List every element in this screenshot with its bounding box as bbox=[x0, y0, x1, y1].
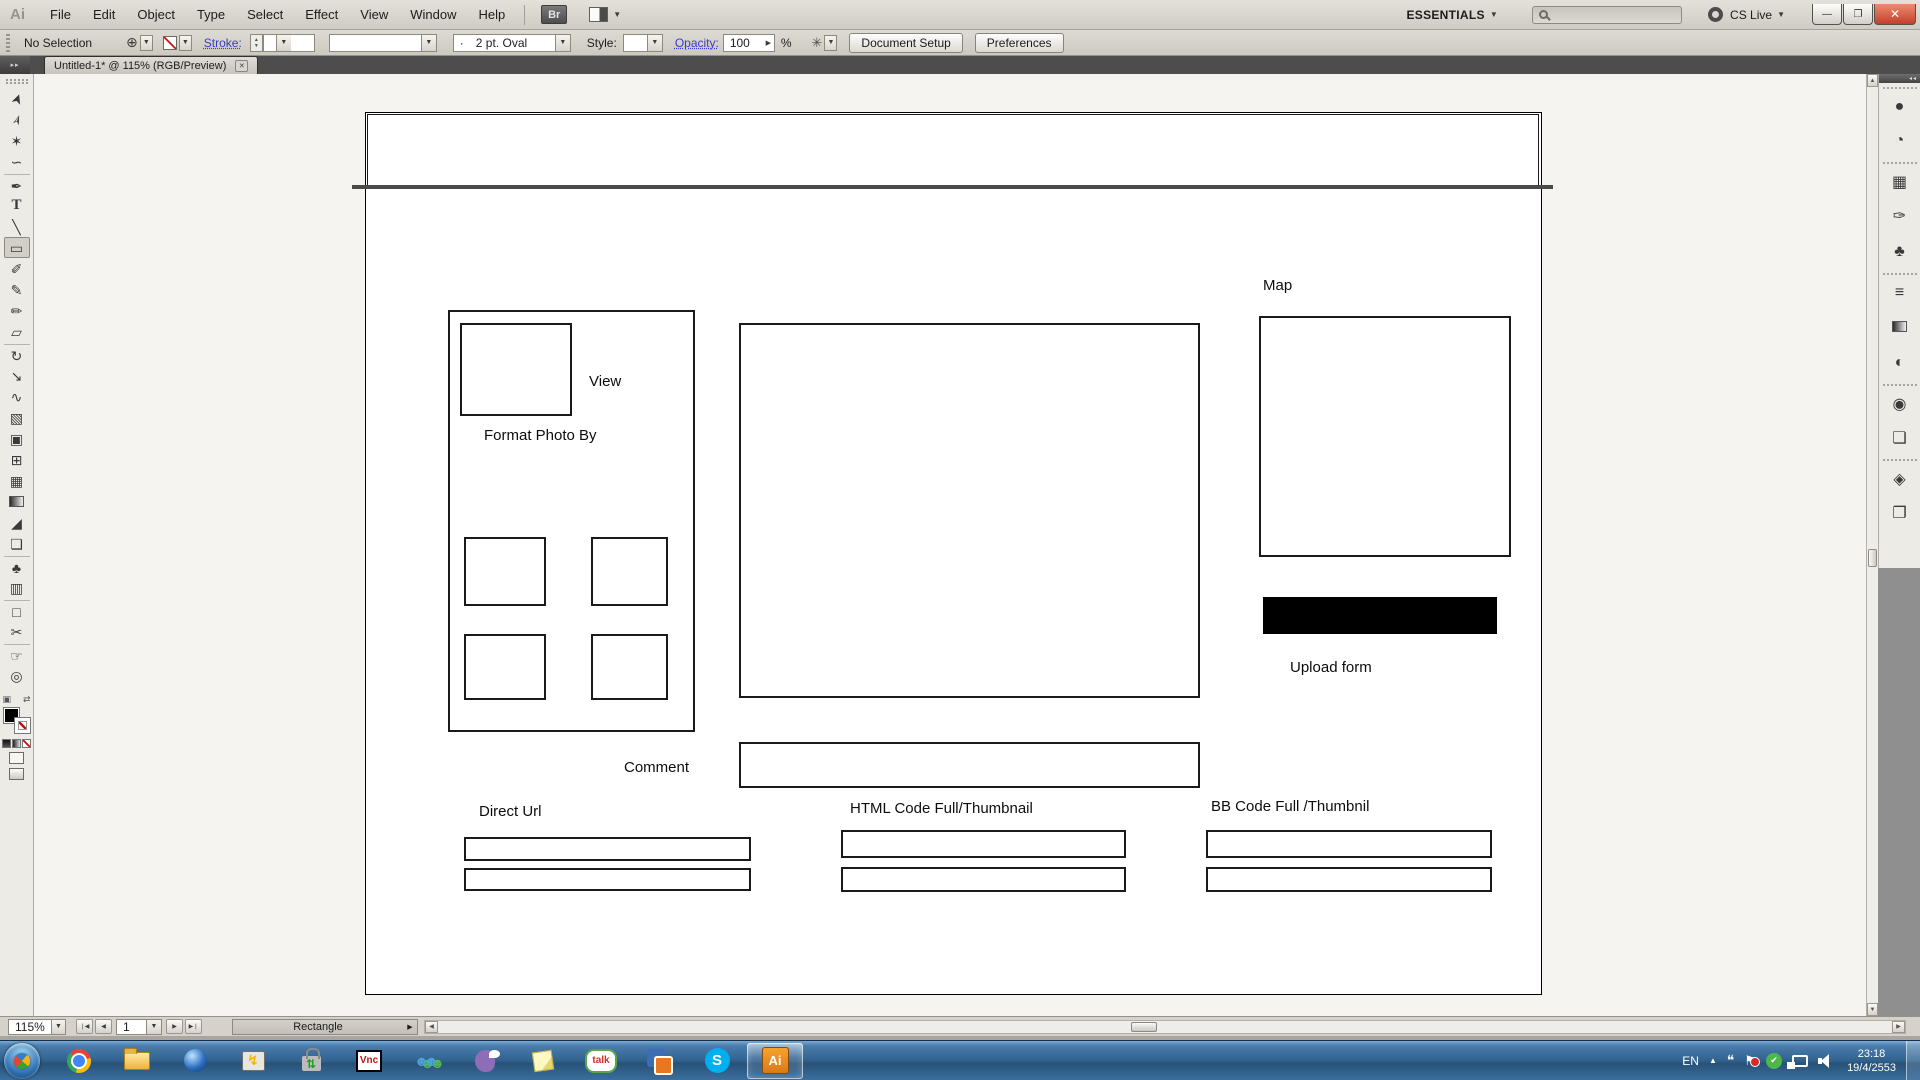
tool-glyph-icon: ✶ bbox=[11, 134, 23, 148]
upload-form-label[interactable]: Upload form bbox=[1290, 659, 1372, 676]
taskbar-vnc[interactable]: Vnc bbox=[341, 1043, 397, 1079]
dock-panel-list: ●◔▦✑♣≡◐◉❏◈❐ bbox=[1879, 87, 1920, 530]
tool-glyph-icon: ╲ bbox=[12, 220, 20, 234]
app-icon: talk bbox=[587, 1051, 615, 1071]
tray-action-center-icon[interactable]: ⚑ bbox=[1744, 1053, 1756, 1069]
vertical-scrollbar[interactable]: ▲ ▼ bbox=[1866, 74, 1878, 1016]
tool-glyph-icon: ◎ bbox=[10, 669, 22, 683]
panel-color-guide[interactable]: ◔ bbox=[1883, 123, 1917, 158]
panel-glyph-icon: ❏ bbox=[1892, 428, 1906, 448]
chevron-down-icon: ▼ bbox=[1777, 10, 1785, 19]
taskbar-explorer[interactable] bbox=[109, 1043, 165, 1079]
panel-glyph-icon: ◔ bbox=[1895, 132, 1905, 150]
chevron-down-icon: ▼ bbox=[146, 1020, 161, 1034]
stroke-none-swatch-icon[interactable] bbox=[163, 36, 177, 50]
direct-url-input-box[interactable] bbox=[464, 837, 751, 861]
panel-swatches[interactable]: ▦ bbox=[1883, 162, 1917, 197]
photo-grid-box[interactable] bbox=[464, 537, 546, 606]
opacity-expand-icon[interactable]: ▶ bbox=[763, 39, 774, 47]
direct-selection-tool[interactable]: ➢ bbox=[4, 109, 30, 130]
graphic-style-combo[interactable]: ▼ bbox=[623, 34, 663, 52]
shape-builder-tool[interactable]: ▣ bbox=[4, 428, 30, 449]
perspective-grid-tool[interactable]: ⊞ bbox=[4, 449, 30, 470]
expand-panels-icon[interactable]: ◂◂ bbox=[1879, 74, 1920, 83]
app-logo-icon: Ai bbox=[10, 6, 25, 23]
taskbar-vmware[interactable] bbox=[631, 1043, 687, 1079]
stroke-swatch[interactable] bbox=[14, 717, 31, 734]
app-icon: S bbox=[705, 1048, 730, 1073]
tray-glyph-icon: EN bbox=[1682, 1054, 1699, 1068]
panel-transparency[interactable]: ◐ bbox=[1883, 345, 1917, 380]
menu-divider bbox=[524, 5, 525, 25]
percent-label: % bbox=[781, 36, 792, 50]
tool-glyph-icon: ☞ bbox=[10, 649, 23, 663]
tool-glyph-icon: ↻ bbox=[11, 349, 23, 363]
status-display-combo[interactable]: Rectangle ▶ bbox=[232, 1019, 418, 1035]
taskbar-pidgin[interactable] bbox=[457, 1043, 513, 1079]
panel-appearance[interactable]: ◉ bbox=[1883, 384, 1917, 419]
default-fill-stroke-icon[interactable]: ▣ bbox=[3, 694, 12, 705]
app-icon bbox=[647, 1049, 665, 1067]
tray-show-hidden-icons[interactable]: ▲ bbox=[1709, 1056, 1717, 1065]
photo-thumbnail-box[interactable] bbox=[460, 323, 572, 416]
stroke-weight-stepper[interactable]: ▲▼ bbox=[250, 34, 263, 52]
tools-panel: ➤➢✶∽✒T╲▭✐✎✏▱↻↘∿▧▣⊞▦◢❏♣▥□✂☞◎ ▣ ⇄ bbox=[0, 74, 34, 1016]
stroke-panel-link[interactable]: Stroke: bbox=[204, 36, 242, 50]
type-tool[interactable]: T bbox=[4, 195, 30, 216]
tray-network-icon[interactable] bbox=[1792, 1055, 1808, 1067]
opacity-panel-link[interactable]: Opacity: bbox=[675, 36, 719, 50]
tool-glyph-icon: ✎ bbox=[11, 283, 23, 297]
window-controls: — ❐ ✕ bbox=[1811, 4, 1916, 25]
tool-glyph-icon bbox=[9, 496, 24, 507]
menu-bar-right: ESSENTIALS ▼ CS Live ▼ — ❐ ✕ bbox=[1406, 4, 1920, 25]
swap-fill-stroke-icon[interactable]: ⇄ bbox=[23, 694, 31, 705]
paintbrush-tool[interactable]: ✐ bbox=[4, 258, 30, 279]
tool-glyph-icon: ∽ bbox=[11, 155, 23, 169]
minimize-button[interactable]: — bbox=[1812, 4, 1842, 25]
cs-live-menu[interactable]: CS Live ▼ bbox=[1708, 7, 1785, 22]
panel-graphic-styles[interactable]: ❏ bbox=[1883, 420, 1917, 455]
help-search-field[interactable] bbox=[1532, 6, 1682, 24]
blob-brush-tool[interactable]: ✏ bbox=[4, 300, 30, 321]
comment-label[interactable]: Comment bbox=[624, 759, 689, 776]
direct-url-input-box[interactable] bbox=[464, 868, 751, 891]
taskbar-chrome[interactable] bbox=[51, 1043, 107, 1079]
tool-glyph-icon: ↘ bbox=[11, 369, 23, 383]
lasso-tool[interactable]: ∽ bbox=[4, 151, 30, 172]
blend-tool[interactable]: ❏ bbox=[4, 533, 30, 554]
fill-color-caret-icon[interactable]: ▼ bbox=[140, 35, 153, 51]
panel-dock: ◂◂ ●◔▦✑♣≡◐◉❏◈❐ bbox=[1878, 74, 1920, 1016]
tray-icon-list: EN▲❝⚑✔ bbox=[1677, 1052, 1839, 1069]
menu-item[interactable]: Edit bbox=[82, 0, 126, 30]
tray-language-indicator[interactable]: EN bbox=[1682, 1054, 1699, 1068]
status-expand-icon: ▶ bbox=[403, 1020, 417, 1034]
brush-preview-icon: · bbox=[454, 36, 470, 50]
taskbar-clock[interactable]: 23:18 19/4/2553 bbox=[1847, 1047, 1896, 1075]
expand-tools-panel-icon[interactable]: ▸▸ bbox=[0, 56, 30, 74]
tool-glyph-icon: ▣ bbox=[10, 432, 23, 446]
line-segment-tool[interactable]: ╲ bbox=[4, 216, 30, 237]
zoom-level-combo[interactable]: 115% ▼ bbox=[8, 1019, 66, 1035]
document-tab-title: Untitled-1* @ 115% (RGB/Preview) bbox=[54, 60, 226, 72]
taskbar-google-talk[interactable]: talk bbox=[573, 1043, 629, 1079]
app-icon: ☻☻ bbox=[414, 1053, 439, 1069]
panel-stroke[interactable]: ≡ bbox=[1883, 273, 1917, 308]
menu-item[interactable]: View bbox=[349, 0, 399, 30]
taskbar-illustrator[interactable]: Ai bbox=[747, 1043, 803, 1079]
selection-tool[interactable]: ➤ bbox=[4, 88, 30, 109]
direct-url-label[interactable]: Direct Url bbox=[479, 803, 542, 820]
taskbar-sticky-notes[interactable] bbox=[515, 1043, 571, 1079]
tool-glyph-icon: ✐ bbox=[11, 262, 23, 276]
horizontal-scroll-thumb[interactable] bbox=[1131, 1022, 1157, 1032]
menu-item[interactable]: Effect bbox=[294, 0, 349, 30]
chevron-down-icon: ▼ bbox=[51, 1020, 65, 1034]
chevron-down-icon: ▼ bbox=[647, 35, 662, 51]
tool-glyph-icon: □ bbox=[12, 605, 20, 619]
panel-glyph-icon: ≡ bbox=[1895, 284, 1904, 302]
brush-definition-value: 2 pt. Oval bbox=[470, 36, 555, 50]
color-mode-button[interactable] bbox=[2, 739, 11, 748]
scroll-left-icon[interactable]: ◀ bbox=[425, 1021, 438, 1033]
show-desktop-button[interactable] bbox=[1906, 1041, 1920, 1080]
column-graph-tool[interactable]: ▥ bbox=[4, 577, 30, 598]
drawing-mode-button[interactable] bbox=[9, 752, 24, 764]
app-icon: ↯ bbox=[242, 1051, 265, 1071]
document-tab-bar: ▸▸ Untitled-1* @ 115% (RGB/Preview) ✕ bbox=[0, 56, 1920, 74]
windows-taskbar: ↯⇅Vnc☻☻talkSAi EN▲❝⚑✔ 23:18 19/4/2553 bbox=[0, 1040, 1920, 1080]
current-tool-value: Rectangle bbox=[233, 1021, 403, 1033]
gradient-tool[interactable] bbox=[4, 491, 30, 512]
pencil-tool[interactable]: ✎ bbox=[4, 279, 30, 300]
tool-glyph-icon: ▭ bbox=[10, 241, 23, 255]
panel-glyph-icon bbox=[1892, 321, 1907, 332]
panel-glyph-icon: ● bbox=[1895, 98, 1905, 116]
close-icon[interactable]: ✕ bbox=[235, 60, 248, 72]
gradient-mode-button[interactable] bbox=[12, 739, 21, 748]
taskbar-skype[interactable]: S bbox=[689, 1043, 745, 1079]
tool-list: ➤➢✶∽✒T╲▭✐✎✏▱↻↘∿▧▣⊞▦◢❏♣▥□✂☞◎ bbox=[4, 88, 30, 686]
arrange-documents-caret-icon[interactable]: ▼ bbox=[613, 10, 621, 19]
menu-item[interactable]: Help bbox=[467, 0, 516, 30]
variable-width-profile-combo[interactable]: ▼ bbox=[329, 34, 437, 52]
document-tab[interactable]: Untitled-1* @ 115% (RGB/Preview) ✕ bbox=[44, 56, 258, 74]
menu-item[interactable]: Object bbox=[126, 0, 186, 30]
menu-bar: Ai FileEditObjectTypeSelectEffectViewWin… bbox=[0, 0, 1920, 30]
tool-glyph-icon: ✂ bbox=[11, 625, 23, 639]
panel-glyph-icon: ✑ bbox=[1893, 206, 1906, 226]
zoom-level-value: 115% bbox=[9, 1020, 51, 1034]
nav-divider-line[interactable] bbox=[352, 185, 1553, 189]
app-icon: Vnc bbox=[356, 1050, 382, 1072]
rotate-tool[interactable]: ↻ bbox=[4, 344, 30, 365]
app-icon bbox=[184, 1049, 207, 1072]
tool-glyph-icon: ➤ bbox=[8, 91, 25, 107]
scroll-up-icon[interactable]: ▲ bbox=[1867, 74, 1878, 87]
tool-glyph-icon: ✏ bbox=[11, 304, 23, 318]
tool-glyph-icon: T bbox=[11, 198, 21, 213]
panel-glyph-icon: ◐ bbox=[1895, 354, 1905, 372]
taskbar-globe-browser[interactable] bbox=[167, 1043, 223, 1079]
content-box[interactable] bbox=[739, 323, 1200, 698]
panel-glyph-icon: ◉ bbox=[1893, 394, 1907, 414]
panel-glyph-icon: ♣ bbox=[1894, 243, 1905, 261]
taskbar-secure-transfer[interactable]: ⇅ bbox=[283, 1043, 339, 1079]
menu-item[interactable]: Select bbox=[236, 0, 294, 30]
document-setup-button[interactable]: Document Setup bbox=[849, 33, 962, 53]
menu-item[interactable]: File bbox=[39, 0, 82, 30]
chevron-down-icon: ▼ bbox=[555, 35, 570, 51]
tool-glyph-icon: ▦ bbox=[10, 474, 23, 488]
search-input[interactable] bbox=[1551, 9, 1669, 21]
photo-grid-box[interactable] bbox=[464, 634, 546, 700]
collapsed-panels: ◂◂ ●◔▦✑♣≡◐◉❏◈❐ bbox=[1878, 74, 1920, 568]
app-icon bbox=[532, 1049, 555, 1072]
style-label: Style: bbox=[587, 36, 617, 50]
panel-symbols[interactable]: ♣ bbox=[1883, 234, 1917, 269]
panel-glyph-icon: ◈ bbox=[1893, 469, 1905, 489]
cs-live-icon bbox=[1708, 7, 1723, 22]
tool-glyph-icon: ♣ bbox=[12, 561, 21, 575]
arrange-documents-icon[interactable] bbox=[589, 7, 608, 22]
menu-item[interactable]: Window bbox=[399, 0, 467, 30]
status-bar: 115% ▼ ❘◀ ◀ 1 ▼ ▶ ▶❘ Rectangle ▶ ◀ ▶ bbox=[0, 1016, 1920, 1036]
none-mode-button[interactable] bbox=[22, 739, 31, 748]
control-bar: No Selection ⊕ ▼ ▼ Stroke: ▲▼ ▼ ▼ · 2 pt… bbox=[0, 30, 1920, 56]
tool-glyph-icon: ∿ bbox=[11, 390, 23, 404]
tool-glyph-icon: ◢ bbox=[11, 516, 22, 530]
pen-tool[interactable]: ✒ bbox=[4, 174, 30, 195]
stroke-color-caret-icon[interactable]: ▼ bbox=[179, 35, 192, 51]
control-bar-grip[interactable] bbox=[6, 34, 10, 52]
bb-code-input-box[interactable] bbox=[1206, 830, 1492, 858]
workspace-label: ESSENTIALS bbox=[1406, 8, 1484, 22]
tray-status-ok-icon[interactable]: ✔ bbox=[1766, 1053, 1782, 1069]
format-photo-by-label[interactable]: Format Photo By bbox=[484, 427, 597, 444]
hand-tool[interactable]: ☞ bbox=[4, 644, 30, 665]
panel-glyph-icon: ❐ bbox=[1892, 503, 1906, 523]
slice-tool[interactable]: ✂ bbox=[4, 621, 30, 642]
brush-definition-combo[interactable]: · 2 pt. Oval ▼ bbox=[453, 34, 571, 52]
previous-artboard-button[interactable]: ◀ bbox=[95, 1019, 112, 1034]
artboard-tool[interactable]: □ bbox=[4, 600, 30, 621]
restore-button[interactable]: ❐ bbox=[1843, 4, 1873, 25]
select-similar-caret-icon[interactable]: ▼ bbox=[824, 35, 837, 51]
canvas-pasteboard[interactable]: View Format Photo By Map Upload form Com… bbox=[34, 74, 1866, 1016]
clock-time: 23:18 bbox=[1847, 1047, 1896, 1061]
next-artboard-button[interactable]: ▶ bbox=[166, 1019, 183, 1034]
app-icon: Ai bbox=[762, 1047, 789, 1074]
tray-glyph-icon: ✔ bbox=[1766, 1053, 1782, 1069]
opacity-field[interactable]: 100 ▶ bbox=[723, 34, 775, 52]
panel-artboards[interactable]: ❐ bbox=[1883, 495, 1917, 530]
tool-glyph-icon: ✒ bbox=[11, 179, 23, 193]
scale-tool[interactable]: ↘ bbox=[4, 365, 30, 386]
artboard-number-value: 1 bbox=[117, 1020, 146, 1034]
chevron-down-icon: ▼ bbox=[276, 35, 291, 51]
panel-brushes[interactable]: ✑ bbox=[1883, 198, 1917, 233]
tool-glyph-icon: ➢ bbox=[8, 112, 25, 128]
preferences-button[interactable]: Preferences bbox=[975, 33, 1064, 53]
menu-item[interactable]: Type bbox=[186, 0, 236, 30]
header-banner-box[interactable] bbox=[367, 114, 1539, 186]
tool-glyph-icon: ⊞ bbox=[11, 453, 23, 467]
tray-messenger-icon[interactable]: ❝ bbox=[1727, 1052, 1735, 1069]
html-code-input-box[interactable] bbox=[841, 867, 1126, 892]
map-box[interactable] bbox=[1259, 316, 1511, 557]
tray-glyph-icon: ▲ bbox=[1709, 1056, 1717, 1065]
search-icon bbox=[1539, 10, 1548, 19]
app-icon bbox=[124, 1052, 150, 1070]
tray-glyph-icon: ❝ bbox=[1727, 1052, 1735, 1069]
panel-layers[interactable]: ◈ bbox=[1883, 459, 1917, 494]
tools-panel-grip[interactable] bbox=[6, 79, 28, 84]
width-tool[interactable]: ∿ bbox=[4, 386, 30, 407]
bb-code-label[interactable]: BB Code Full /Thumbnil bbox=[1211, 798, 1369, 815]
tool-glyph-icon: ▱ bbox=[11, 325, 22, 339]
stroke-weight-combo[interactable]: ▼ bbox=[263, 34, 315, 52]
scroll-down-icon[interactable]: ▼ bbox=[1867, 1003, 1878, 1016]
view-label[interactable]: View bbox=[589, 373, 621, 390]
artboard-number-combo[interactable]: 1 ▼ bbox=[116, 1019, 162, 1035]
fill-color-icon[interactable]: ⊕ bbox=[126, 34, 138, 51]
bb-code-input-box[interactable] bbox=[1206, 867, 1492, 892]
app-icon bbox=[475, 1050, 495, 1072]
app-icon bbox=[67, 1049, 91, 1073]
last-artboard-button[interactable]: ▶❘ bbox=[185, 1019, 202, 1034]
rectangle-tool[interactable]: ▭ bbox=[4, 237, 30, 258]
chevron-down-icon: ▼ bbox=[421, 35, 436, 51]
panel-glyph-icon: ▦ bbox=[1892, 172, 1907, 192]
tool-glyph-icon: ❏ bbox=[10, 537, 23, 551]
taskbar-remote-desktop[interactable]: ↯ bbox=[225, 1043, 281, 1079]
tray-glyph-icon bbox=[1818, 1054, 1834, 1068]
system-tray: EN▲❝⚑✔ 23:18 19/4/2553 bbox=[1677, 1041, 1920, 1080]
tray-glyph-icon bbox=[1792, 1055, 1808, 1067]
taskbar-app-list: ↯⇅Vnc☻☻talkSAi bbox=[50, 1043, 804, 1079]
magic-wand-tool[interactable]: ✶ bbox=[4, 130, 30, 151]
panel-color[interactable]: ● bbox=[1883, 87, 1917, 122]
menu-list: FileEditObjectTypeSelectEffectViewWindow… bbox=[39, 0, 516, 30]
photo-grid-box[interactable] bbox=[591, 537, 668, 606]
photo-grid-box[interactable] bbox=[591, 634, 668, 700]
chevron-down-icon: ▼ bbox=[1490, 10, 1498, 19]
tray-glyph-icon: ⚑ bbox=[1744, 1053, 1756, 1069]
fill-stroke-controls: ▣ ⇄ bbox=[2, 694, 32, 784]
tool-glyph-icon: ▧ bbox=[10, 411, 23, 425]
launch-bridge-button[interactable]: Br bbox=[541, 5, 567, 24]
symbol-sprayer-tool[interactable]: ♣ bbox=[4, 556, 30, 577]
mesh-tool[interactable]: ▦ bbox=[4, 470, 30, 491]
map-button-bar[interactable] bbox=[1263, 597, 1497, 634]
workspace-switcher[interactable]: ESSENTIALS ▼ bbox=[1406, 8, 1498, 22]
eyedropper-tool[interactable]: ◢ bbox=[4, 512, 30, 533]
horizontal-scrollbar[interactable]: ◀ ▶ bbox=[424, 1020, 1906, 1034]
html-code-label[interactable]: HTML Code Full/Thumbnail bbox=[850, 800, 1033, 817]
tool-glyph-icon: ▥ bbox=[10, 581, 23, 595]
html-code-input-box[interactable] bbox=[841, 830, 1126, 858]
map-label[interactable]: Map bbox=[1263, 277, 1292, 294]
selection-status: No Selection bbox=[24, 36, 92, 50]
screen-mode-button[interactable] bbox=[9, 768, 24, 780]
taskbar-messenger[interactable]: ☻☻ bbox=[399, 1043, 455, 1079]
clock-date: 19/4/2553 bbox=[1847, 1061, 1896, 1075]
zoom-tool[interactable]: ◎ bbox=[4, 665, 30, 686]
panel-gradient[interactable] bbox=[1883, 309, 1917, 344]
first-artboard-button[interactable]: ❘◀ bbox=[76, 1019, 93, 1034]
tray-volume-icon[interactable] bbox=[1818, 1054, 1834, 1068]
windows-logo-icon bbox=[11, 1049, 34, 1072]
cs-live-label: CS Live bbox=[1730, 8, 1772, 22]
scroll-right-icon[interactable]: ▶ bbox=[1892, 1021, 1905, 1033]
opacity-value: 100 bbox=[724, 36, 763, 50]
free-transform-tool[interactable]: ▧ bbox=[4, 407, 30, 428]
select-similar-icon[interactable]: ✳ bbox=[812, 35, 823, 51]
comment-box[interactable] bbox=[739, 742, 1200, 788]
app-icon: ⇅ bbox=[302, 1056, 321, 1071]
artboard[interactable]: View Format Photo By Map Upload form Com… bbox=[365, 112, 1542, 995]
eraser-tool[interactable]: ▱ bbox=[4, 321, 30, 342]
start-button[interactable] bbox=[4, 1043, 40, 1079]
vertical-scroll-thumb[interactable] bbox=[1868, 549, 1877, 567]
close-button[interactable]: ✕ bbox=[1874, 4, 1916, 25]
